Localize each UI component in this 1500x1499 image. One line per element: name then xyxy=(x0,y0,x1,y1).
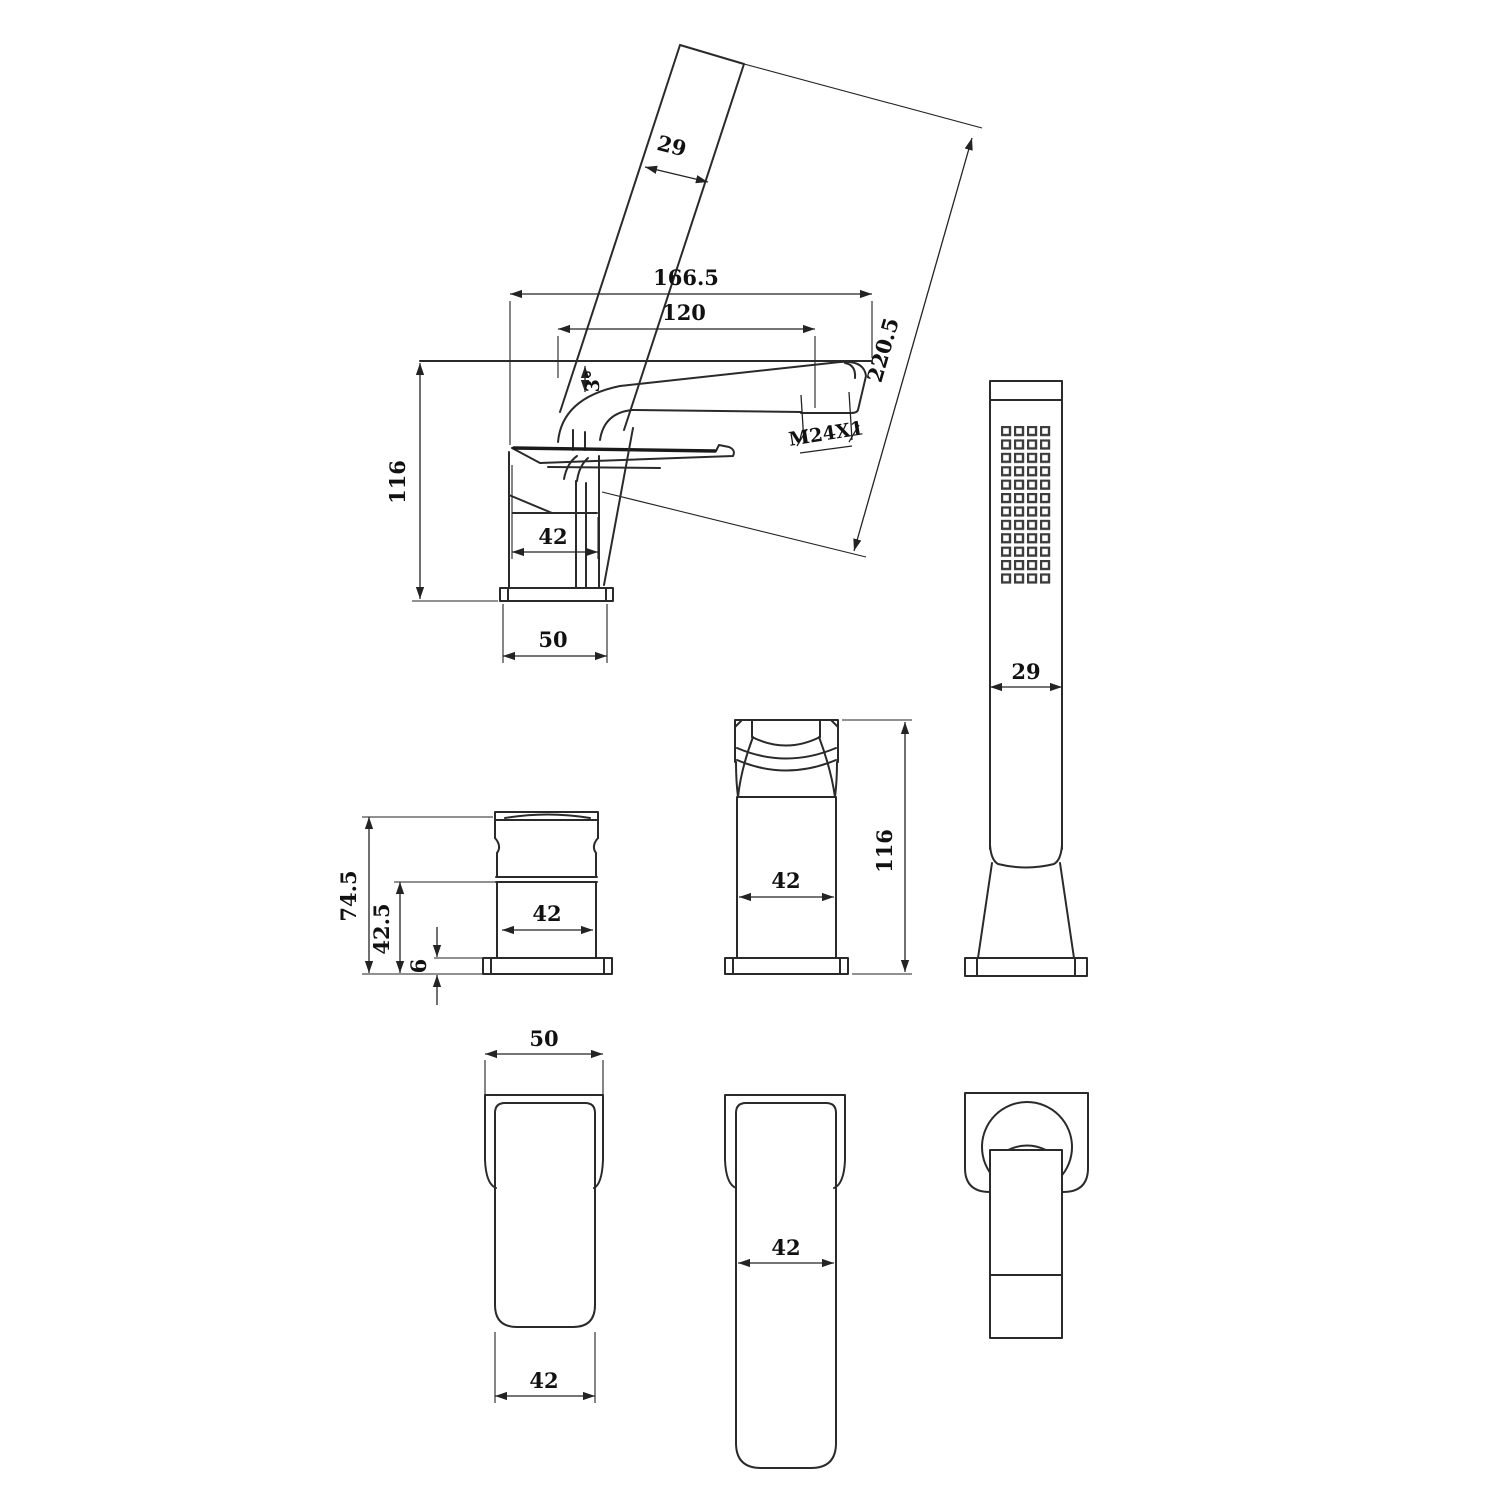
dim-label-upper-height: 42.5 xyxy=(369,903,394,954)
dim-label-inner-width: 42 xyxy=(529,1368,558,1393)
front-cap xyxy=(735,720,838,762)
main-side-view: 220.5 29 166.5 120 3° M24X1 xyxy=(385,45,982,663)
spout-tube-outline xyxy=(736,1103,836,1468)
dim-label-width: 29 xyxy=(1011,659,1040,684)
drawing-canvas: 220.5 29 166.5 120 3° M24X1 xyxy=(0,0,1500,1499)
ext-line xyxy=(434,958,483,974)
shower-wand-bottom xyxy=(990,845,1062,868)
dim-label-spout-angle: 3° xyxy=(582,370,604,393)
dim-label-outer-width: 50 xyxy=(529,1026,558,1051)
hand-shower-front-view: 29 xyxy=(965,381,1087,976)
dim-label-total-height: 74.5 xyxy=(336,870,361,921)
handle-top-view xyxy=(965,1093,1088,1338)
body-outline xyxy=(509,428,633,588)
ext-line xyxy=(602,492,866,557)
dim-label-height: 116 xyxy=(385,460,410,504)
dim-label-shower-length: 220.5 xyxy=(862,315,904,385)
ext-line xyxy=(744,64,982,128)
handle-lever-top-edge xyxy=(514,448,715,451)
base-flange xyxy=(500,588,613,601)
spout-top-view: 42 xyxy=(725,1095,845,1468)
dim-label-base-thickness: 6 xyxy=(406,959,431,974)
shower-flare xyxy=(978,863,1074,958)
body-waist xyxy=(495,838,598,853)
body-base-plate xyxy=(483,958,612,974)
shower-base-plate xyxy=(965,958,1087,976)
dim-label-body-width: 42 xyxy=(538,524,567,549)
base-outer-outline xyxy=(485,1095,603,1188)
dim-label-width: 42 xyxy=(771,1235,800,1260)
dim-label-width: 42 xyxy=(771,868,800,893)
spout-elbow-outer xyxy=(558,386,620,442)
dim-label-shower-width: 29 xyxy=(655,130,689,161)
front-base-plate xyxy=(725,958,848,974)
body-cap xyxy=(495,812,598,838)
handle-stick xyxy=(990,1150,1062,1338)
dim-label-base-width: 50 xyxy=(538,627,567,652)
dim-label-spout-reach: 120 xyxy=(662,300,706,325)
body-side-view: 74.5 42.5 6 42 xyxy=(336,812,612,1005)
spout-outline xyxy=(620,362,866,413)
dim-label-outlet-thread: M24X1 xyxy=(787,417,865,451)
handle-neck-curves xyxy=(564,456,588,481)
base-top-view: 50 42 xyxy=(485,1026,603,1403)
dim-line-shower-width xyxy=(645,167,708,182)
spout-elbow-inner xyxy=(600,410,632,440)
faucet-technical-drawing: 220.5 29 166.5 120 3° M24X1 xyxy=(0,0,1500,1499)
handle-lever-shadow-line xyxy=(548,467,660,468)
body-front-view: 116 42 xyxy=(725,720,912,974)
dim-label-overall-length: 166.5 xyxy=(653,265,719,290)
spout-tip-inner-line xyxy=(845,363,855,378)
dim-label-height: 116 xyxy=(872,829,897,873)
dim-label-width: 42 xyxy=(532,901,561,926)
nozzle-grid xyxy=(1001,426,1053,586)
spout-head-outline xyxy=(725,1095,845,1188)
riser-lines xyxy=(573,430,585,450)
spout-bottom-edge xyxy=(632,410,801,412)
base-inner-outline xyxy=(495,1103,595,1327)
